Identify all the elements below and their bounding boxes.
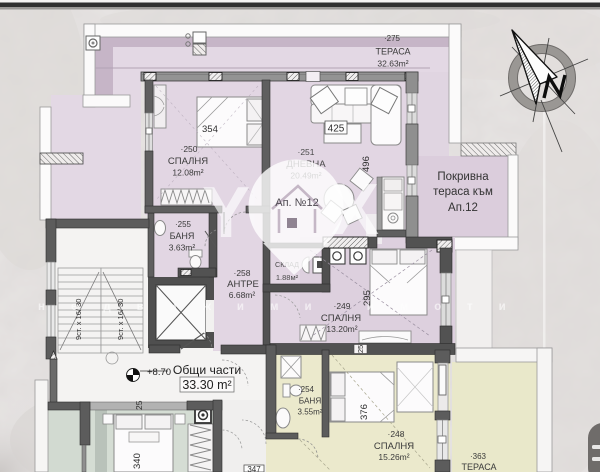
svg-text:1.88м²: 1.88м² <box>276 273 299 282</box>
svg-text:Покривна: Покривна <box>437 171 489 183</box>
svg-text:СПАЛНЯ: СПАЛНЯ <box>168 156 208 167</box>
svg-text:340: 340 <box>132 453 143 469</box>
svg-text:БАНЯ: БАНЯ <box>299 397 322 406</box>
svg-text:12.08m²: 12.08m² <box>172 168 203 178</box>
svg-text:·248: ·248 <box>387 429 404 439</box>
svg-text:25: 25 <box>356 345 365 353</box>
svg-text:3.55m²: 3.55m² <box>298 408 323 417</box>
svg-text:347: 347 <box>247 465 261 472</box>
svg-text:·363: ·363 <box>470 452 487 461</box>
svg-text:ТЕРАСА: ТЕРАСА <box>461 462 496 472</box>
svg-text:425: 425 <box>328 124 345 135</box>
svg-text:БАНЯ: БАНЯ <box>170 231 195 241</box>
svg-text:АНТРЕ: АНТРЕ <box>227 279 259 290</box>
svg-text:·251: ·251 <box>297 147 314 157</box>
svg-text:32.63m²: 32.63m² <box>377 59 408 69</box>
svg-text:Y: Y <box>202 173 250 253</box>
svg-text:13.20m²: 13.20m² <box>326 324 357 334</box>
svg-text:Общи части: Общи части <box>173 363 241 377</box>
svg-text:Ап. №12: Ап. №12 <box>275 197 318 209</box>
svg-text:+8.70: +8.70 <box>147 367 171 378</box>
svg-text:тераса към: тераса към <box>433 186 493 198</box>
svg-text:·255: ·255 <box>175 220 192 229</box>
svg-text:33.30 m²: 33.30 m² <box>182 378 231 392</box>
svg-text:354: 354 <box>202 124 218 135</box>
svg-text:3.63m²: 3.63m² <box>169 243 196 253</box>
svg-text:СПАЛНЯ: СПАЛНЯ <box>321 313 361 324</box>
svg-text:376: 376 <box>359 404 370 420</box>
svg-text:·258: ·258 <box>233 268 250 278</box>
svg-text:·250: ·250 <box>180 144 197 154</box>
svg-text:·275: ·275 <box>384 34 401 43</box>
svg-text:ТЕРАСА: ТЕРАСА <box>375 47 410 57</box>
svg-text:·254: ·254 <box>298 385 315 394</box>
svg-text:25: 25 <box>134 400 144 410</box>
svg-text:6.68m²: 6.68m² <box>229 290 256 300</box>
svg-text:15.26m²: 15.26m² <box>378 452 409 462</box>
svg-text:Ап.12: Ап.12 <box>448 202 478 214</box>
svg-text:недвижими имоти: недвижими имоти <box>38 301 532 313</box>
svg-text:СПАЛНЯ: СПАЛНЯ <box>374 441 414 452</box>
